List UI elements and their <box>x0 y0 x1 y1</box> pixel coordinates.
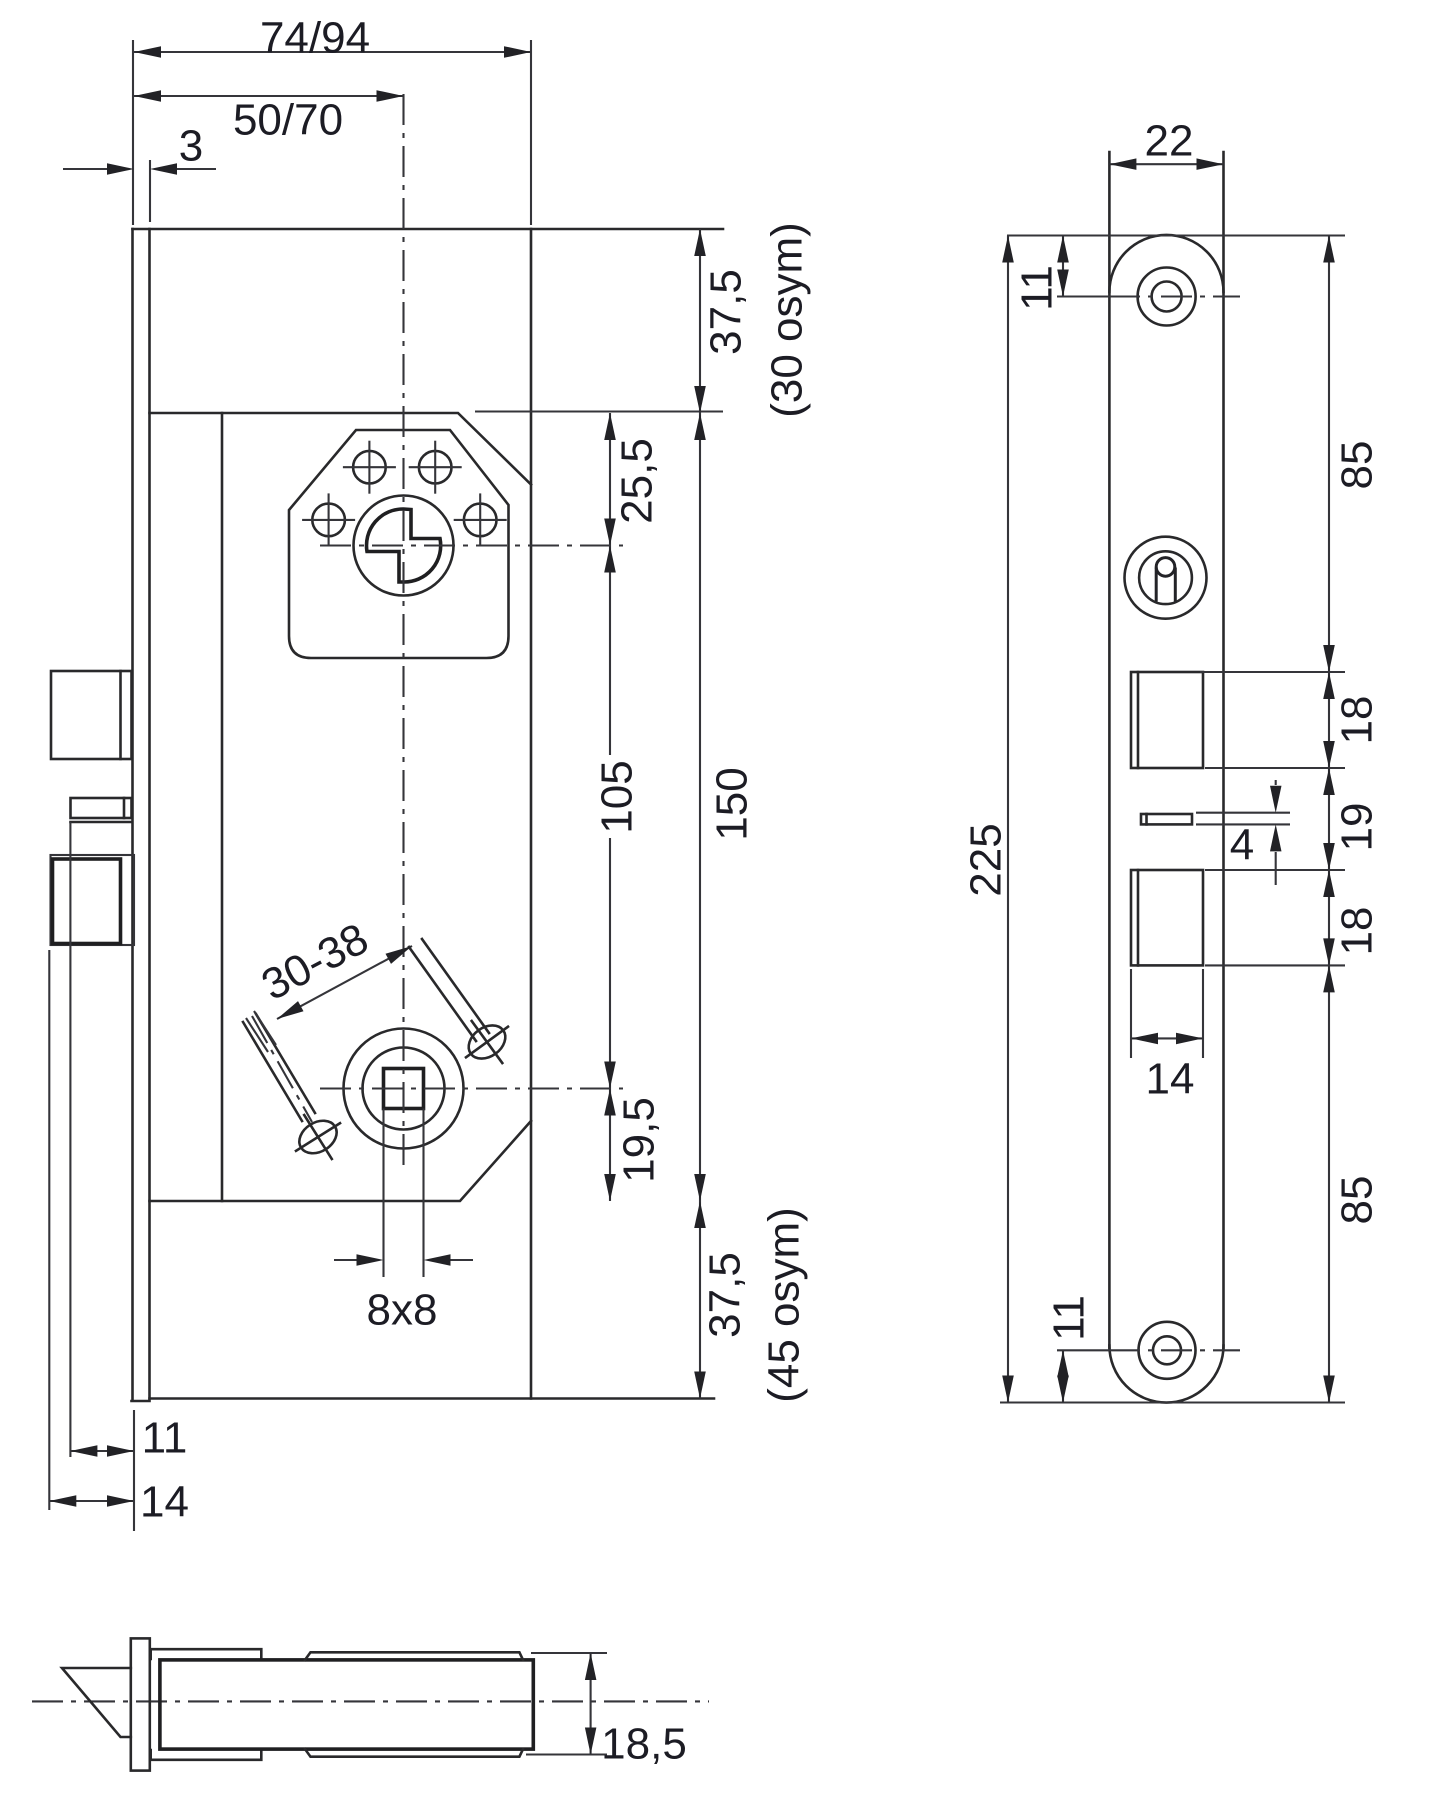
svg-text:85: 85 <box>1333 1176 1382 1225</box>
svg-text:105: 105 <box>593 760 642 833</box>
svg-text:14: 14 <box>140 1478 189 1527</box>
svg-text:11: 11 <box>1013 265 1062 311</box>
svg-text:37,5: 37,5 <box>701 1252 750 1338</box>
svg-text:37,5: 37,5 <box>702 269 751 355</box>
svg-text:(30 osym): (30 osym) <box>763 222 812 418</box>
svg-text:150: 150 <box>708 767 757 840</box>
svg-text:50/70: 50/70 <box>233 96 343 145</box>
svg-text:18,5: 18,5 <box>601 1720 687 1769</box>
svg-text:11: 11 <box>1045 1295 1094 1341</box>
svg-text:4: 4 <box>1230 821 1254 870</box>
svg-text:85: 85 <box>1333 441 1382 490</box>
svg-text:22: 22 <box>1145 117 1194 166</box>
svg-text:(45 osym): (45 osym) <box>760 1207 809 1403</box>
svg-text:8x8: 8x8 <box>367 1286 438 1335</box>
svg-text:30-38: 30-38 <box>254 914 376 1010</box>
svg-text:3: 3 <box>179 122 203 171</box>
svg-text:25,5: 25,5 <box>613 438 662 524</box>
svg-text:74/94: 74/94 <box>260 14 370 63</box>
svg-text:19,5: 19,5 <box>615 1097 664 1183</box>
svg-text:14: 14 <box>1146 1055 1195 1104</box>
svg-text:11: 11 <box>142 1414 188 1463</box>
svg-text:19: 19 <box>1333 803 1382 852</box>
svg-text:225: 225 <box>962 823 1011 896</box>
svg-text:18: 18 <box>1333 907 1382 956</box>
svg-text:18: 18 <box>1333 696 1382 745</box>
